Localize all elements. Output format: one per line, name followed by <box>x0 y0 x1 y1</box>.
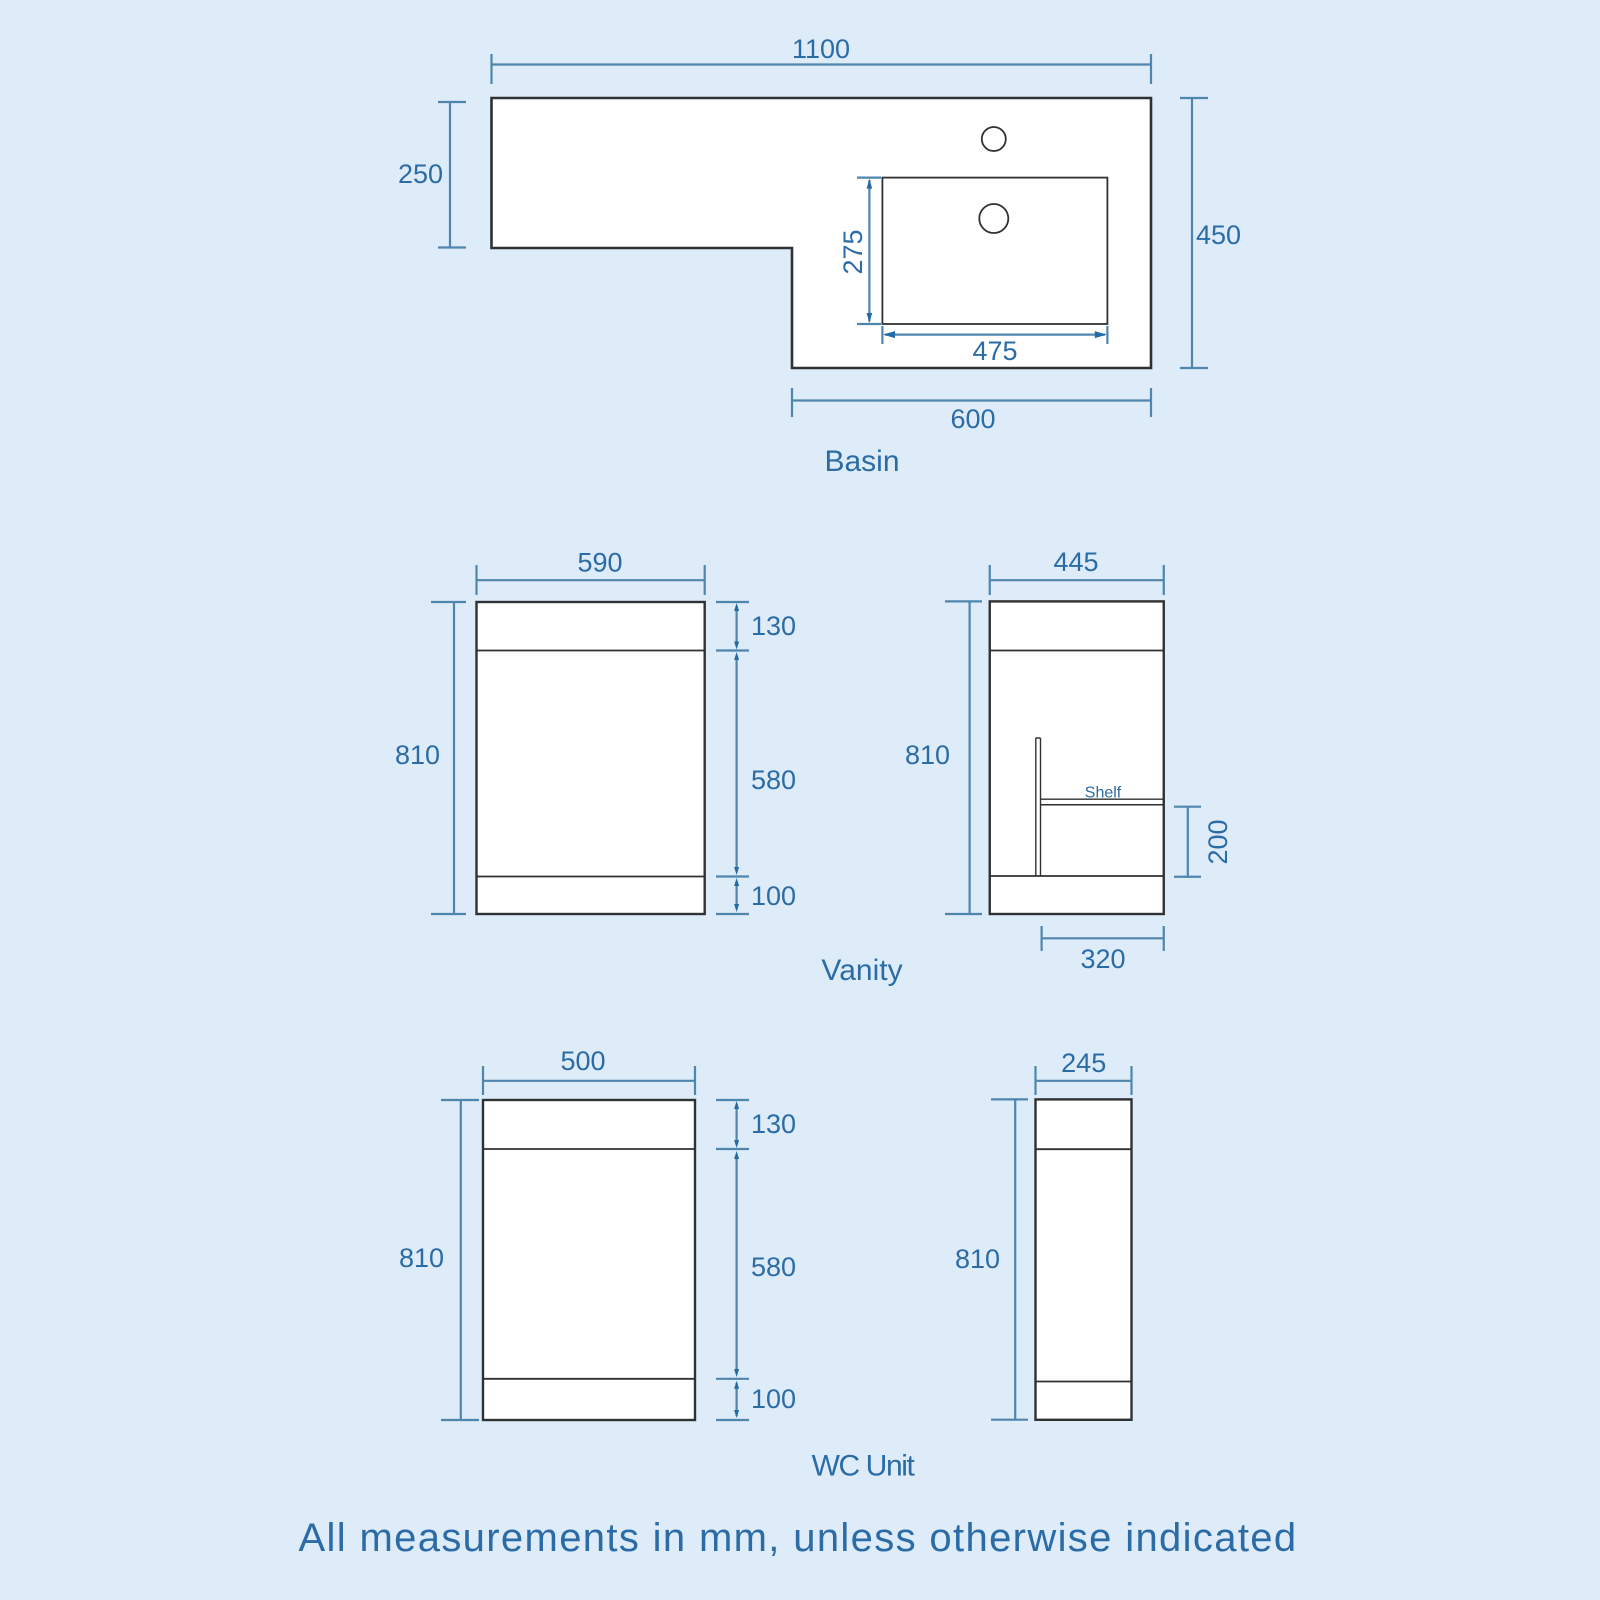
svg-text:445: 445 <box>1053 547 1098 577</box>
svg-text:245: 245 <box>1061 1048 1106 1078</box>
svg-text:580: 580 <box>751 1252 796 1282</box>
svg-text:Vanity: Vanity <box>821 954 902 987</box>
svg-text:130: 130 <box>751 1109 796 1139</box>
svg-text:320: 320 <box>1080 944 1125 974</box>
svg-text:580: 580 <box>751 765 796 795</box>
svg-text:475: 475 <box>972 336 1017 366</box>
svg-text:100: 100 <box>751 881 796 911</box>
svg-text:810: 810 <box>955 1244 1000 1274</box>
svg-text:275: 275 <box>838 229 868 274</box>
svg-text:Shelf: Shelf <box>1085 785 1122 802</box>
svg-text:810: 810 <box>399 1243 444 1273</box>
svg-text:810: 810 <box>905 740 950 770</box>
svg-text:810: 810 <box>395 740 440 770</box>
svg-text:WC Unit: WC Unit <box>812 1450 916 1483</box>
svg-text:250: 250 <box>398 159 443 189</box>
svg-text:450: 450 <box>1196 220 1241 250</box>
svg-text:590: 590 <box>577 548 622 578</box>
svg-text:200: 200 <box>1203 819 1233 864</box>
svg-text:All measurements in mm, unless: All measurements in mm, unless otherwise… <box>298 1516 1297 1560</box>
svg-text:1100: 1100 <box>792 34 850 64</box>
svg-text:130: 130 <box>751 611 796 641</box>
svg-text:600: 600 <box>950 404 995 434</box>
svg-text:500: 500 <box>560 1046 605 1076</box>
svg-text:Basin: Basin <box>824 445 899 478</box>
svg-text:100: 100 <box>751 1384 796 1414</box>
